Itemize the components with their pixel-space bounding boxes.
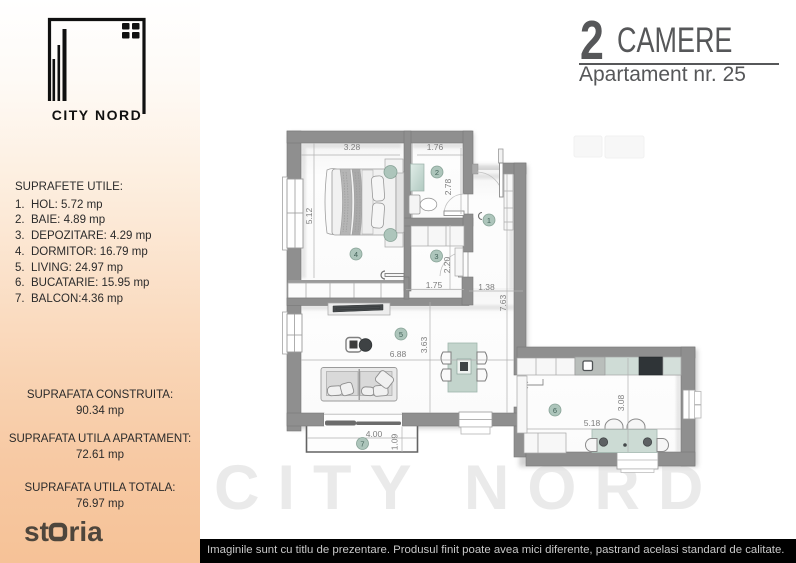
svg-text:5: 5 bbox=[399, 330, 403, 339]
svg-text:3.28: 3.28 bbox=[344, 142, 361, 152]
svg-text:2.20: 2.20 bbox=[442, 256, 452, 273]
svg-text:1.75: 1.75 bbox=[426, 280, 443, 290]
svg-text:6.88: 6.88 bbox=[390, 349, 407, 359]
svg-text:4: 4 bbox=[354, 250, 358, 259]
svg-text:5.12: 5.12 bbox=[304, 207, 314, 224]
svg-text:1.76: 1.76 bbox=[427, 142, 444, 152]
svg-text:4.00: 4.00 bbox=[366, 429, 383, 439]
svg-text:6: 6 bbox=[553, 406, 557, 415]
svg-text:1.09: 1.09 bbox=[390, 433, 400, 450]
svg-text:1.38: 1.38 bbox=[478, 282, 495, 292]
svg-text:3.08: 3.08 bbox=[616, 394, 626, 411]
svg-text:3.63: 3.63 bbox=[419, 336, 429, 353]
svg-text:7.63: 7.63 bbox=[498, 294, 508, 311]
svg-text:7: 7 bbox=[360, 440, 364, 449]
svg-text:2: 2 bbox=[435, 168, 439, 177]
svg-text:3: 3 bbox=[434, 252, 438, 261]
svg-text:2.78: 2.78 bbox=[443, 178, 453, 195]
svg-text:1: 1 bbox=[487, 216, 491, 225]
svg-text:5.18: 5.18 bbox=[584, 418, 601, 428]
